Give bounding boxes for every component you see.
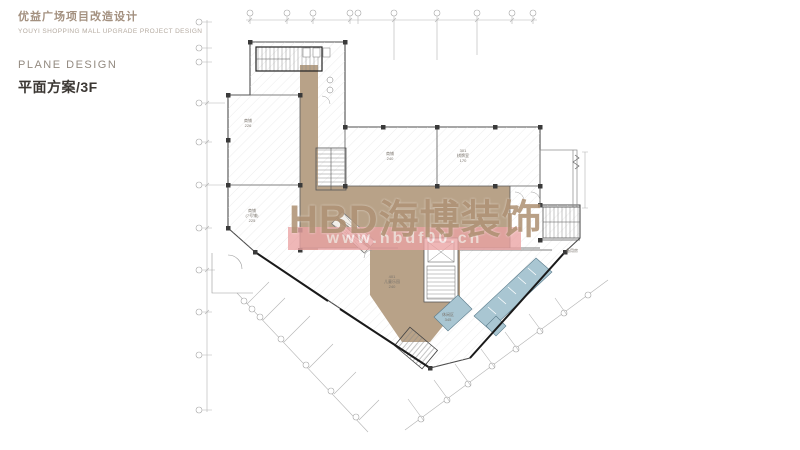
entry-porch bbox=[212, 253, 253, 293]
terrace bbox=[540, 150, 579, 207]
stair-exterior-right bbox=[543, 207, 580, 238]
left-grid-bubbles bbox=[196, 19, 225, 413]
room-label: 备用房 bbox=[566, 247, 578, 253]
room-label: 226 bbox=[245, 123, 252, 128]
room-label: 345 bbox=[445, 317, 452, 322]
room-label: 240 bbox=[389, 284, 396, 289]
stair-core-mid bbox=[316, 148, 346, 190]
watermark-brand: HBD海博装饰 bbox=[289, 187, 543, 245]
room-label: 225 bbox=[249, 218, 256, 223]
room-label: 240 bbox=[387, 156, 394, 161]
room-label: 170 bbox=[460, 158, 467, 163]
slide-page: 优益广场项目改造设计 YOUYI SHOPPING MALL UPGRADE P… bbox=[0, 0, 800, 450]
